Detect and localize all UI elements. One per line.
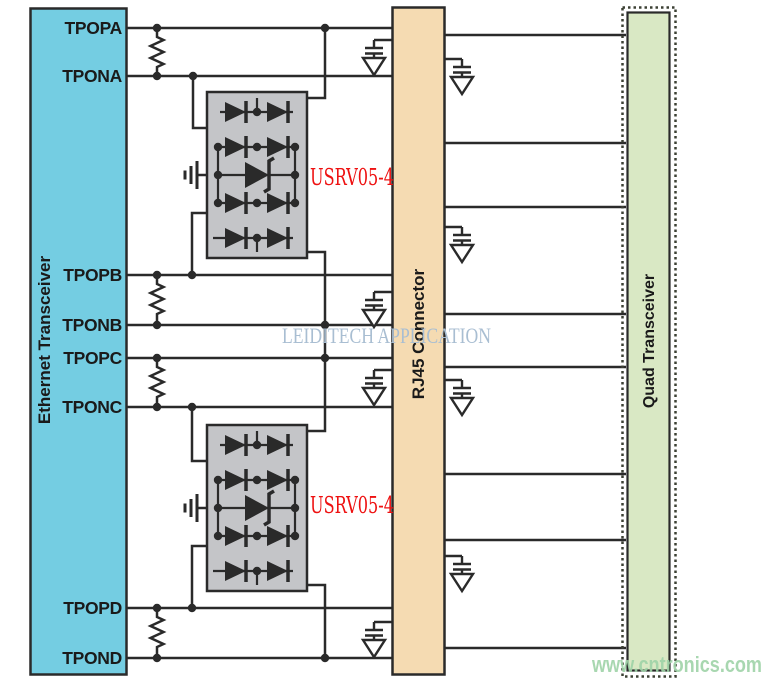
capacitor-ground-icon	[363, 622, 385, 657]
capacitor-ground-icon	[451, 556, 473, 591]
quad-transceiver-label: Quad Transceiver	[641, 274, 658, 408]
pin-label-tpopc: TPOPC	[63, 348, 122, 368]
site-watermark: www.cntronics.com	[591, 652, 762, 677]
capacitor-ground-icon	[363, 370, 385, 405]
tvs-diode-array-2	[207, 425, 307, 591]
capacitor-ground-icon	[451, 380, 473, 415]
capacitor-ground-icon	[363, 40, 385, 75]
termination-resistor-c	[151, 358, 164, 406]
pin-label-tpopb: TPOPB	[63, 265, 122, 285]
termination-resistor-b	[151, 275, 164, 323]
pin-label-tpopd: TPOPD	[63, 598, 122, 618]
tvs-part-label-1: USRV05-4	[310, 165, 394, 191]
schematic: TPOPA TPONA TPOPB TPONB TPOPC TPONC TPOP…	[0, 0, 778, 685]
schematic-canvas: TPOPA TPONA TPOPB TPONB TPOPC TPONC TPOP…	[0, 0, 778, 685]
capacitor-ground-icon	[451, 227, 473, 262]
capacitor-ground-icon	[363, 292, 385, 327]
pin-label-tpona: TPONA	[62, 66, 122, 86]
capacitor-ground-icon	[451, 59, 473, 94]
pin-label-tpopa: TPOPA	[65, 18, 123, 38]
termination-resistor-a	[151, 28, 164, 76]
pin-label-tpond: TPOND	[62, 648, 122, 668]
tvs-part-label-2: USRV05-4	[310, 493, 394, 519]
ethernet-transceiver-label: Ethernet Transceiver	[35, 256, 54, 425]
pin-label-tponb: TPONB	[62, 315, 122, 335]
termination-resistor-d	[151, 608, 164, 656]
ground-icon	[185, 161, 197, 189]
pin-label-tponc: TPONC	[62, 397, 122, 417]
tvs-diode-array-1	[207, 92, 307, 258]
watermark-text: LEIDITECH APPLICATION	[282, 323, 491, 348]
ground-icon	[185, 494, 197, 522]
